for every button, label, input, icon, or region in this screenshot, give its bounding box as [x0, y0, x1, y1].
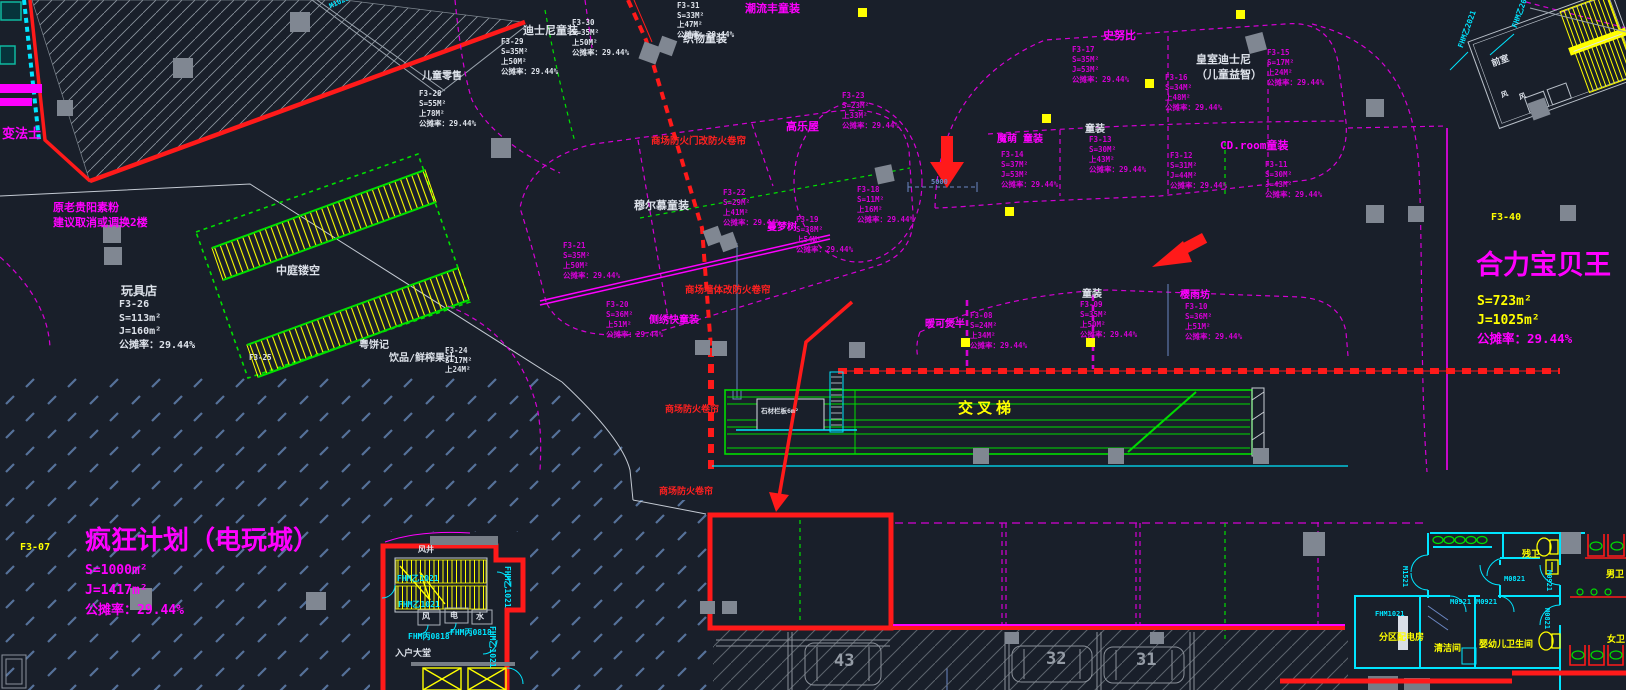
- hatched-zone: [24, 0, 527, 182]
- escalator-a: [212, 170, 436, 280]
- aloe-shop-box: [710, 515, 1345, 628]
- escalator-b: [247, 268, 469, 377]
- cad-floorplan-canvas: 变法士原老贵阳素粉建议取消或调换2楼儿童零售F3-28S=55M²上78M²公摊…: [0, 0, 1626, 690]
- gravel-hatch-zone: [0, 378, 708, 690]
- parking-strip: [713, 630, 1348, 690]
- dimension-lines: [733, 182, 1168, 690]
- red-arrow-southwest: [1152, 233, 1207, 267]
- red-arrow-down: [930, 136, 964, 188]
- crossing-escalator: [712, 372, 1348, 466]
- yellow-markers: [858, 8, 1245, 347]
- atrium-void: [196, 154, 470, 378]
- stair-elevator-core: [370, 532, 530, 690]
- panel-board: [1398, 616, 1408, 650]
- cad-drawing: [0, 0, 1626, 690]
